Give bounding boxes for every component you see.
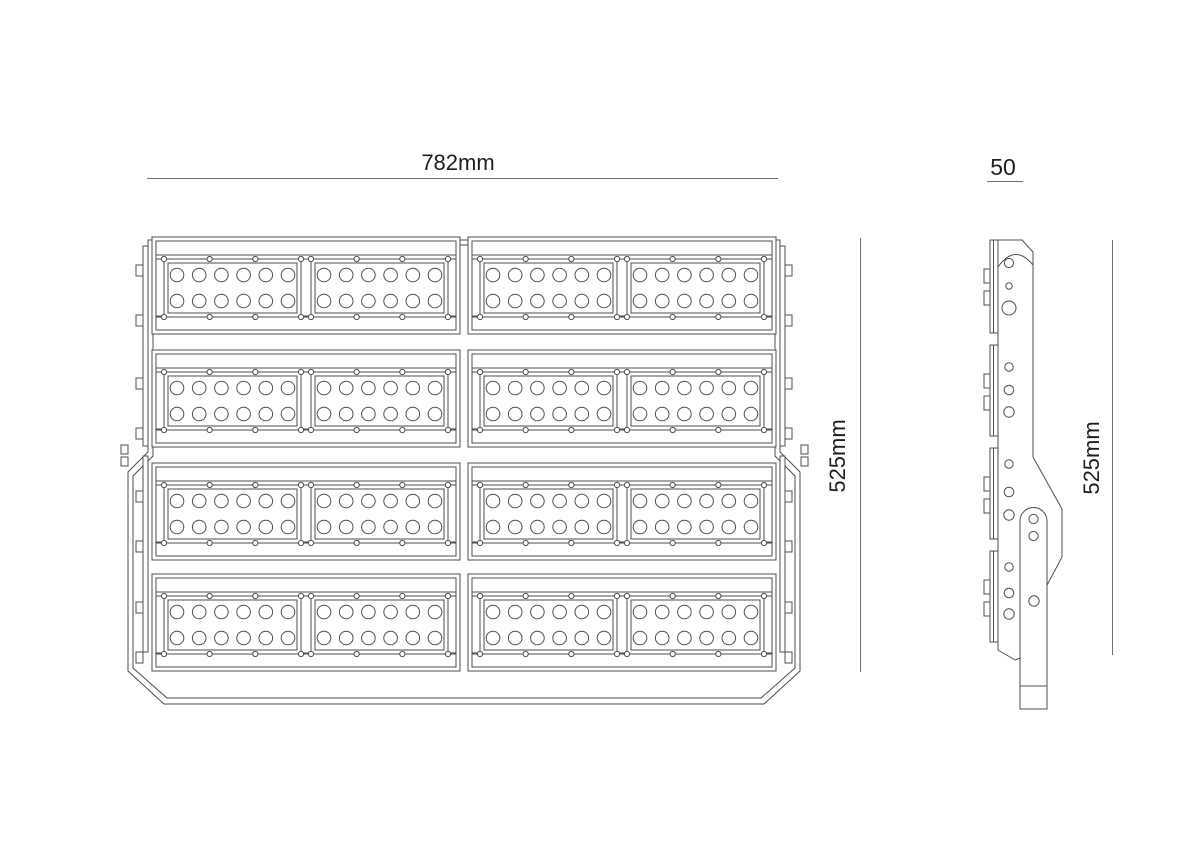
side-body-hole xyxy=(1006,283,1012,289)
panel-frame-outer xyxy=(164,596,301,654)
led-circle xyxy=(237,520,251,534)
led-circle xyxy=(553,381,567,395)
mounting-tab-left xyxy=(136,491,143,502)
led-circle xyxy=(508,268,522,282)
panel-screw xyxy=(298,256,303,261)
led-circle xyxy=(384,520,398,534)
panel-screw xyxy=(624,427,629,432)
panel-frame-outer xyxy=(480,259,617,317)
side-body-hole xyxy=(1004,588,1014,598)
side-fin-bump xyxy=(984,580,990,594)
panel-screw xyxy=(308,482,313,487)
led-circle xyxy=(655,268,669,282)
panel-screw xyxy=(253,482,258,487)
panel-screw xyxy=(207,482,212,487)
panel-screw xyxy=(298,651,303,656)
panel-frame-outer xyxy=(480,596,617,654)
led-circle xyxy=(406,631,420,645)
panel-screw xyxy=(523,540,528,545)
panel-screw xyxy=(445,314,450,319)
led-circle xyxy=(259,268,273,282)
panel-screw xyxy=(253,256,258,261)
led-circle xyxy=(722,631,736,645)
led-circle xyxy=(597,268,611,282)
panel-screw xyxy=(716,314,721,319)
led-circle xyxy=(259,381,273,395)
led-circle xyxy=(281,381,295,395)
led-circle xyxy=(339,294,353,308)
led-circle xyxy=(281,268,295,282)
panel-screw xyxy=(400,314,405,319)
led-circle xyxy=(575,381,589,395)
led-circle xyxy=(170,605,184,619)
panel-frame-outer xyxy=(311,259,448,317)
led-circle xyxy=(486,520,500,534)
led-circle xyxy=(553,605,567,619)
panel-screw xyxy=(614,540,619,545)
led-circle xyxy=(633,268,647,282)
panel-screw xyxy=(308,540,313,545)
mounting-tab-right xyxy=(785,541,792,552)
led-circle xyxy=(406,494,420,508)
led-circle xyxy=(259,494,273,508)
side-fin-bump xyxy=(984,269,990,283)
technical-drawing-page: 782mm 525mm 50 525mm xyxy=(0,0,1191,842)
led-circle xyxy=(237,631,251,645)
led-circle xyxy=(406,407,420,421)
panel-frame-outer xyxy=(164,259,301,317)
led-circle xyxy=(486,294,500,308)
bracket-hole xyxy=(1029,514,1038,523)
led-circle xyxy=(237,294,251,308)
led-circle xyxy=(597,381,611,395)
side-rail xyxy=(143,246,148,446)
led-circle xyxy=(170,381,184,395)
mounting-tab-right xyxy=(785,315,792,326)
panel-screw xyxy=(761,256,766,261)
led-circle xyxy=(744,407,758,421)
led-circle xyxy=(700,494,714,508)
panel-screw xyxy=(716,651,721,656)
led-circle xyxy=(508,294,522,308)
mounting-tab-right xyxy=(785,265,792,276)
led-circle xyxy=(553,294,567,308)
side-height-dimension: 525mm xyxy=(1079,240,1113,655)
panel-screw xyxy=(445,482,450,487)
led-circle xyxy=(384,494,398,508)
panel-frame-outer xyxy=(311,596,448,654)
panel-screw xyxy=(400,593,405,598)
led-circle xyxy=(281,294,295,308)
mounting-tab-right xyxy=(785,602,792,613)
led-circle xyxy=(597,605,611,619)
panel-screw xyxy=(354,651,359,656)
panel-screw xyxy=(716,369,721,374)
panel-screw xyxy=(761,651,766,656)
led-circle xyxy=(406,605,420,619)
panel-screw xyxy=(477,482,482,487)
panel-screw xyxy=(614,256,619,261)
side-width-label: 50 xyxy=(990,154,1016,180)
transition-ear xyxy=(801,457,808,466)
led-circle xyxy=(192,381,206,395)
led-circle xyxy=(384,381,398,395)
led-circle xyxy=(655,407,669,421)
side-body-hole xyxy=(1004,609,1014,619)
led-circle xyxy=(531,294,545,308)
led-module-block xyxy=(468,237,776,334)
led-circle xyxy=(384,268,398,282)
panel-screw xyxy=(253,314,258,319)
led-circle xyxy=(215,294,229,308)
led-circle xyxy=(678,520,692,534)
side-body-hole xyxy=(1004,258,1013,267)
led-circle xyxy=(678,381,692,395)
panel-screw xyxy=(354,482,359,487)
panel-screw xyxy=(716,256,721,261)
side-body-hole xyxy=(1004,487,1014,497)
panel-screw xyxy=(569,314,574,319)
led-circle xyxy=(722,268,736,282)
transition-ear xyxy=(121,445,128,454)
led-circle xyxy=(428,381,442,395)
led-circle xyxy=(259,631,273,645)
panel-frame-outer xyxy=(627,485,764,543)
led-panel xyxy=(161,256,303,319)
led-circle xyxy=(486,268,500,282)
panel-screw xyxy=(761,369,766,374)
led-circle xyxy=(633,381,647,395)
side-fin-bump xyxy=(984,291,990,305)
led-circle xyxy=(362,494,376,508)
led-circle xyxy=(597,294,611,308)
mounting-tab-right xyxy=(785,378,792,389)
led-circle xyxy=(722,407,736,421)
led-circle xyxy=(237,381,251,395)
led-circle xyxy=(362,631,376,645)
panel-screw xyxy=(354,314,359,319)
panel-screw xyxy=(207,256,212,261)
panel-screw xyxy=(253,427,258,432)
led-circle xyxy=(553,631,567,645)
led-circle xyxy=(553,268,567,282)
panel-screw xyxy=(569,651,574,656)
panel-screw xyxy=(161,593,166,598)
panel-screw xyxy=(161,651,166,656)
led-circle xyxy=(237,407,251,421)
led-circle xyxy=(339,268,353,282)
led-circle xyxy=(281,520,295,534)
led-circle xyxy=(633,631,647,645)
front-fixture xyxy=(121,237,808,704)
led-panel xyxy=(308,482,450,545)
led-circle xyxy=(486,381,500,395)
led-circle xyxy=(428,294,442,308)
led-circle xyxy=(597,631,611,645)
led-circle xyxy=(215,605,229,619)
panel-screw xyxy=(445,427,450,432)
panel-screw xyxy=(624,482,629,487)
transition-ear xyxy=(801,445,808,454)
led-circle xyxy=(281,605,295,619)
panel-frame-outer xyxy=(480,372,617,430)
led-circle xyxy=(317,631,331,645)
panel-screw xyxy=(445,593,450,598)
panel-screw xyxy=(161,256,166,261)
panel-screw xyxy=(716,427,721,432)
panel-screw xyxy=(308,314,313,319)
panel-screw xyxy=(298,482,303,487)
led-circle xyxy=(575,294,589,308)
led-circle xyxy=(597,520,611,534)
led-circle xyxy=(486,407,500,421)
panel-screw xyxy=(523,482,528,487)
panel-screw xyxy=(624,593,629,598)
mounting-tab-right xyxy=(785,428,792,439)
panel-screw xyxy=(670,651,675,656)
led-circle xyxy=(486,494,500,508)
led-circle xyxy=(170,520,184,534)
panel-screw xyxy=(161,540,166,545)
led-circle xyxy=(339,381,353,395)
mounting-tab-right xyxy=(785,652,792,663)
led-circle xyxy=(281,494,295,508)
led-panel xyxy=(624,256,766,319)
side-fin-group xyxy=(984,448,998,539)
led-circle xyxy=(317,407,331,421)
led-panel xyxy=(624,369,766,432)
side-fin-bump xyxy=(984,374,990,388)
panel-screw xyxy=(716,593,721,598)
panel-screw xyxy=(445,651,450,656)
panel-screw xyxy=(614,482,619,487)
led-panel xyxy=(477,482,619,545)
led-circle xyxy=(317,520,331,534)
led-circle xyxy=(170,494,184,508)
led-circle xyxy=(553,520,567,534)
panel-screw xyxy=(569,427,574,432)
led-circle xyxy=(170,407,184,421)
led-circle xyxy=(722,381,736,395)
panel-screw xyxy=(716,540,721,545)
led-circle xyxy=(655,520,669,534)
led-circle xyxy=(428,605,442,619)
panel-screw xyxy=(477,314,482,319)
led-circle xyxy=(486,605,500,619)
panel-screw xyxy=(624,369,629,374)
panel-frame-outer xyxy=(627,259,764,317)
panel-screw xyxy=(298,593,303,598)
led-circle xyxy=(700,381,714,395)
mounting-tab-left xyxy=(136,428,143,439)
panel-screw xyxy=(569,593,574,598)
panel-screw xyxy=(207,427,212,432)
led-panel xyxy=(161,369,303,432)
panel-screw xyxy=(624,314,629,319)
led-circle xyxy=(553,494,567,508)
led-circle xyxy=(678,631,692,645)
led-circle xyxy=(722,605,736,619)
led-circle xyxy=(406,520,420,534)
led-circle xyxy=(508,494,522,508)
panel-screw xyxy=(354,593,359,598)
panel-screw xyxy=(477,593,482,598)
bracket-hole xyxy=(1029,531,1038,540)
panel-screw xyxy=(523,427,528,432)
led-circle xyxy=(428,631,442,645)
led-module-block xyxy=(152,574,460,671)
led-circle xyxy=(531,268,545,282)
transition-ear xyxy=(121,457,128,466)
mounting-tab-left xyxy=(136,541,143,552)
panel-screw xyxy=(354,369,359,374)
led-circle xyxy=(428,494,442,508)
led-circle xyxy=(317,381,331,395)
side-body-hole xyxy=(1005,460,1013,468)
led-circle xyxy=(722,520,736,534)
led-circle xyxy=(722,494,736,508)
panel-screw xyxy=(614,427,619,432)
side-body-hole xyxy=(1002,301,1016,315)
led-circle xyxy=(339,407,353,421)
panel-screw xyxy=(761,593,766,598)
panel-screw xyxy=(354,427,359,432)
led-module-block xyxy=(468,350,776,447)
led-circle xyxy=(531,407,545,421)
panel-frame-outer xyxy=(311,485,448,543)
side-body-hole xyxy=(1004,407,1014,417)
panel-screw xyxy=(308,256,313,261)
panel-screw xyxy=(253,540,258,545)
panel-screw xyxy=(298,314,303,319)
panel-screw xyxy=(523,593,528,598)
led-circle xyxy=(259,605,273,619)
led-circle xyxy=(700,407,714,421)
led-circle xyxy=(192,268,206,282)
led-circle xyxy=(384,407,398,421)
panel-frame-outer xyxy=(627,596,764,654)
panel-screw xyxy=(624,651,629,656)
led-circle xyxy=(575,520,589,534)
panel-screw xyxy=(161,427,166,432)
side-width-dimension: 50 xyxy=(987,154,1023,182)
led-circle xyxy=(384,294,398,308)
led-circle xyxy=(428,268,442,282)
led-panel xyxy=(624,593,766,656)
led-circle xyxy=(508,381,522,395)
led-panel xyxy=(308,369,450,432)
led-circle xyxy=(362,381,376,395)
led-circle xyxy=(317,268,331,282)
led-circle xyxy=(170,294,184,308)
led-circle xyxy=(215,520,229,534)
led-circle xyxy=(362,605,376,619)
mounting-tab-left xyxy=(136,602,143,613)
panel-screw xyxy=(207,540,212,545)
bracket-hole xyxy=(1029,596,1039,606)
led-panel xyxy=(308,256,450,319)
led-circle xyxy=(531,605,545,619)
led-circle xyxy=(678,494,692,508)
led-circle xyxy=(700,268,714,282)
panel-screw xyxy=(400,427,405,432)
panel-frame-outer xyxy=(311,372,448,430)
led-circle xyxy=(237,494,251,508)
led-circle xyxy=(192,631,206,645)
led-circle xyxy=(531,520,545,534)
led-circle xyxy=(700,631,714,645)
led-circle xyxy=(633,605,647,619)
led-circle xyxy=(192,407,206,421)
led-circle xyxy=(215,407,229,421)
led-circle xyxy=(655,294,669,308)
panel-screw xyxy=(614,369,619,374)
led-panel xyxy=(477,256,619,319)
front-view: 782mm 525mm xyxy=(121,150,861,704)
led-circle xyxy=(384,605,398,619)
led-floodlight-drawing: 782mm 525mm 50 525mm xyxy=(0,0,1191,842)
led-circle xyxy=(317,294,331,308)
led-panel xyxy=(624,482,766,545)
panel-screw xyxy=(308,593,313,598)
led-circle xyxy=(192,520,206,534)
led-circle xyxy=(339,605,353,619)
led-circle xyxy=(531,631,545,645)
side-rail xyxy=(780,246,785,446)
led-circle xyxy=(384,631,398,645)
led-circle xyxy=(406,294,420,308)
led-circle xyxy=(362,407,376,421)
led-module-block xyxy=(468,574,776,671)
led-circle xyxy=(259,407,273,421)
panel-screw xyxy=(207,651,212,656)
led-circle xyxy=(508,631,522,645)
led-circle xyxy=(428,407,442,421)
panel-screw xyxy=(308,651,313,656)
led-circle xyxy=(744,294,758,308)
led-circle xyxy=(678,268,692,282)
led-circle xyxy=(575,494,589,508)
led-circle xyxy=(655,605,669,619)
led-module-block xyxy=(468,463,776,560)
led-circle xyxy=(633,520,647,534)
led-circle xyxy=(553,407,567,421)
side-fin-group xyxy=(984,551,998,642)
led-circle xyxy=(362,268,376,282)
side-fixture xyxy=(984,240,1062,709)
panel-screw xyxy=(445,540,450,545)
panel-screw xyxy=(670,482,675,487)
led-panel xyxy=(161,482,303,545)
led-circle xyxy=(406,381,420,395)
panel-screw xyxy=(761,427,766,432)
panel-screw xyxy=(670,593,675,598)
panel-screw xyxy=(207,369,212,374)
led-module-block xyxy=(152,237,460,334)
led-circle xyxy=(531,381,545,395)
led-circle xyxy=(170,268,184,282)
led-circle xyxy=(744,631,758,645)
panel-screw xyxy=(207,314,212,319)
led-circle xyxy=(192,605,206,619)
led-circle xyxy=(215,494,229,508)
side-body-hole xyxy=(1004,385,1014,395)
led-circle xyxy=(655,381,669,395)
mounting-tab-left xyxy=(136,652,143,663)
led-circle xyxy=(281,631,295,645)
mounting-tab-right xyxy=(785,491,792,502)
panel-screw xyxy=(253,651,258,656)
